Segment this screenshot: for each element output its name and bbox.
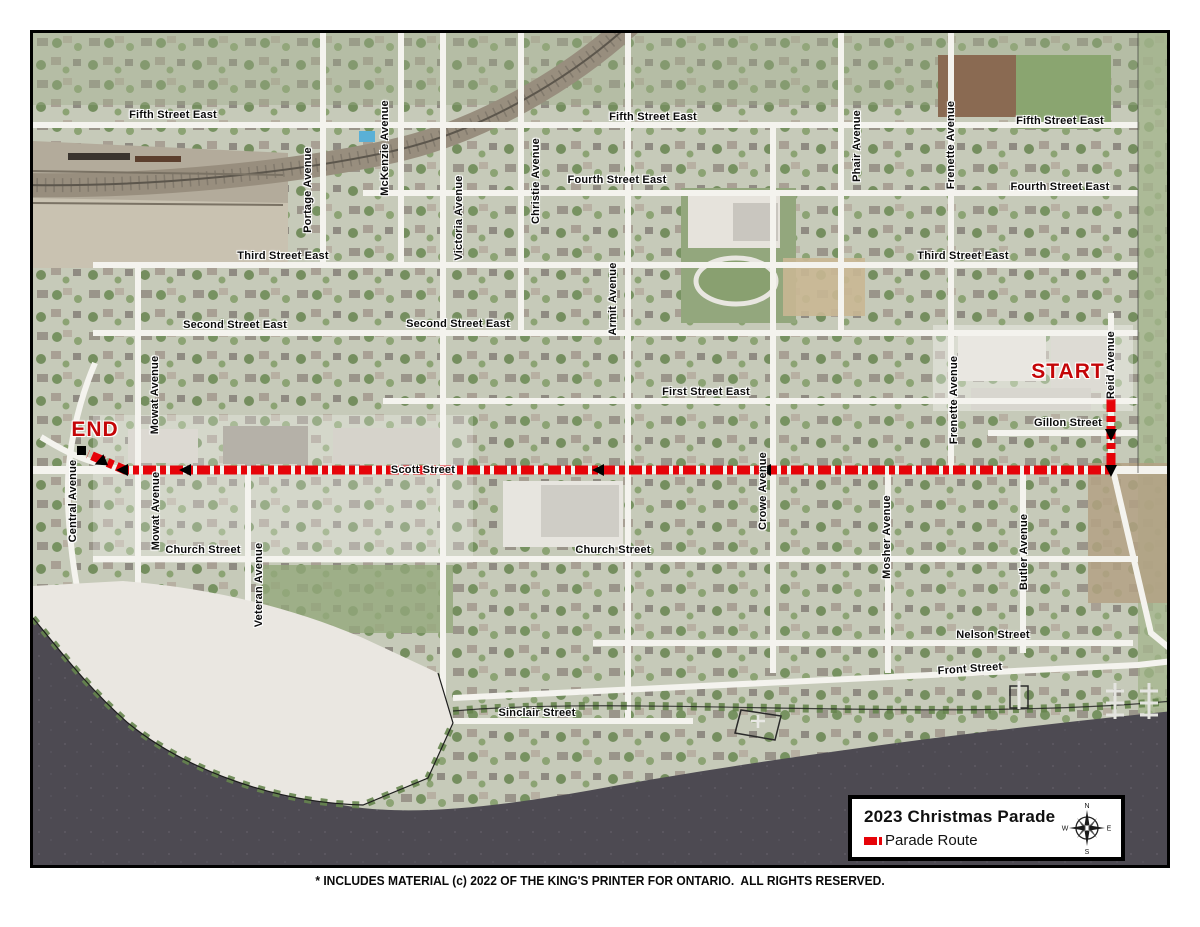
compass-rose-icon: N E S W: [1061, 800, 1113, 856]
street-label: Butler Avenue: [1018, 514, 1030, 590]
street-label: Gillon Street: [1034, 417, 1102, 429]
svg-text:N: N: [1084, 803, 1089, 810]
street-label: Victoria Avenue: [453, 175, 465, 260]
street-label: Scott Street: [391, 464, 455, 476]
street-label: Third Street East: [237, 250, 328, 262]
street-label: Portage Avenue: [302, 147, 314, 233]
street-label: Fourth Street East: [568, 174, 667, 186]
svg-text:W: W: [1062, 826, 1069, 833]
street-label: Christie Avenue: [530, 138, 542, 224]
street-label: Second Street East: [406, 318, 510, 330]
street-label: Central Avenue: [67, 460, 79, 543]
street-label: Reid Avenue: [1105, 331, 1117, 399]
street-label: Frenette Avenue: [948, 356, 960, 444]
copyright-caption: * INCLUDES MATERIAL (c) 2022 OF THE KING…: [24, 874, 1176, 888]
street-label: Second Street East: [183, 319, 287, 331]
street-label: Frenette Avenue: [945, 101, 957, 189]
street-label: Crowe Avenue: [757, 452, 769, 530]
street-label: Fifth Street East: [1016, 115, 1104, 127]
street-label: First Street East: [662, 386, 750, 398]
svg-text:E: E: [1107, 826, 1112, 833]
svg-text:S: S: [1085, 849, 1090, 856]
route-start-label: START: [1031, 360, 1104, 384]
street-label: Fourth Street East: [1011, 181, 1110, 193]
street-labels-layer: Fifth Street EastFifth Street EastFifth …: [33, 33, 1167, 865]
street-label: Fifth Street East: [129, 109, 217, 121]
street-label: Third Street East: [917, 250, 1008, 262]
street-label: Front Street: [937, 661, 1002, 677]
street-label: Armit Avenue: [607, 262, 619, 335]
street-label: Nelson Street: [956, 629, 1030, 641]
route-swatch-icon: [864, 837, 882, 845]
street-label: Church Street: [165, 544, 240, 556]
street-label: McKenzie Avenue: [379, 100, 391, 196]
street-label: Mosher Avenue: [881, 495, 893, 579]
route-end-label: END: [71, 418, 118, 442]
street-label: Church Street: [575, 544, 650, 556]
street-label: Mowat Avenue: [149, 356, 161, 435]
legend-box: 2023 Christmas Parade Parade Route N E: [848, 795, 1125, 861]
street-label: Fifth Street East: [609, 111, 697, 123]
street-label: Mowat Avenue: [150, 472, 162, 551]
street-label: Sinclair Street: [499, 707, 576, 719]
street-label: Phair Avenue: [851, 110, 863, 182]
parade-route-map: Fifth Street EastFifth Street EastFifth …: [30, 30, 1170, 868]
legend-item-label: Parade Route: [885, 832, 978, 849]
street-label: Veteran Avenue: [253, 543, 265, 628]
